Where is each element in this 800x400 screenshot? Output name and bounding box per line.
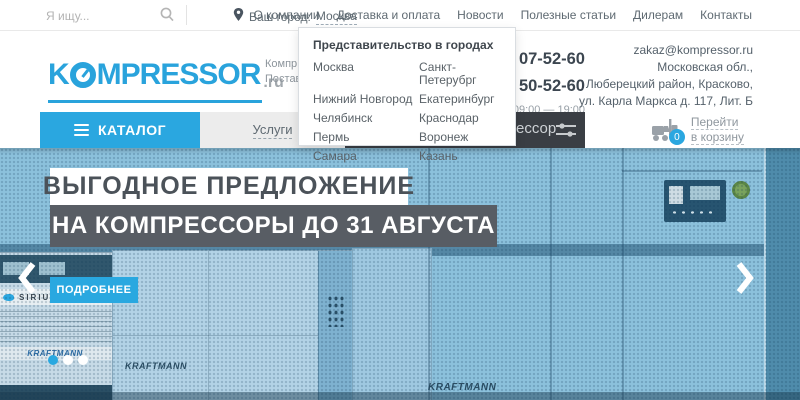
details-button[interactable]: ПОДРОБНЕЕ	[50, 277, 138, 303]
panel-seam	[550, 148, 552, 400]
city-dropdown-title: Представительство в городах	[313, 38, 501, 52]
city-option[interactable]: Казань	[419, 150, 501, 163]
sirius-logo-icon	[3, 294, 14, 301]
cart-label-line2: в корзину	[691, 131, 744, 145]
phone-number-2: 50-52-60	[513, 73, 585, 100]
cart-count-badge: 0	[669, 129, 685, 145]
topbar-divider	[186, 5, 187, 25]
city-dropdown-grid: Москва Санкт-Петерубрг Нижний Новгород Е…	[313, 61, 501, 163]
logo-text-mpressor: MPRESSOR	[97, 58, 261, 92]
phone-number-1: 07-52-60	[513, 46, 585, 73]
machine-right-control-panel	[664, 180, 726, 222]
city-option[interactable]: Пермь	[313, 131, 419, 144]
floor-shadow	[0, 392, 800, 400]
filter-sliders-icon[interactable]	[555, 121, 577, 144]
slider-next-arrow[interactable]	[732, 260, 756, 301]
catalog-button[interactable]: КАТАЛОГ	[40, 112, 200, 148]
promo-banner-line2: НА КОМПРЕССОРЫ ДО 31 АВГУСТА	[50, 205, 497, 247]
vent-holes	[327, 295, 345, 327]
nav-delivery[interactable]: Доставка и оплата	[337, 8, 441, 22]
machine-left-vents	[0, 311, 113, 343]
panel-seam	[208, 251, 209, 400]
emergency-knob	[732, 181, 750, 199]
logo-text-k: K	[48, 58, 69, 92]
hamburger-icon	[74, 124, 89, 136]
contacts-block: zakaz@kompressor.ru Московская обл., Люб…	[579, 42, 753, 110]
panel-seam	[622, 170, 762, 172]
cart-button[interactable]: 0 Перейти в корзину	[585, 112, 760, 148]
panel-seam	[428, 148, 430, 400]
city-option[interactable]: Екатеринбург	[419, 93, 501, 106]
page: Ваш город: Москва О компании Доставка и …	[0, 0, 800, 400]
services-label[interactable]: Услуги	[253, 122, 293, 139]
control-panel-logo	[669, 186, 683, 204]
machine-right-edge	[764, 148, 800, 400]
compressor-machine-center: KRAFTMANN	[112, 250, 354, 400]
control-panel-buttons	[670, 209, 718, 216]
tagline-line1: Компр	[265, 57, 301, 72]
city-dropdown: Представительство в городах Москва Санкт…	[298, 27, 516, 146]
nav-articles[interactable]: Полезные статьи	[521, 8, 616, 22]
cart-label-line1: Перейти	[691, 116, 739, 130]
nav-dealers[interactable]: Дилерам	[633, 8, 683, 22]
email-link[interactable]: zakaz@kompressor.ru	[579, 42, 753, 59]
nav-contacts[interactable]: Контакты	[700, 8, 752, 22]
tagline-line2: Постав	[265, 72, 301, 87]
slider-dot-1[interactable]	[48, 355, 58, 365]
nav-news[interactable]: Новости	[457, 8, 503, 22]
slider-dot-2[interactable]	[63, 355, 73, 365]
gauge-icon	[70, 62, 96, 88]
control-panel-screen	[690, 186, 720, 200]
hero-slider: SIRIUS KRAFTMANN KRAFTMANN KRAFTMANN	[0, 148, 800, 400]
slider-prev-arrow[interactable]	[16, 260, 40, 301]
panel-seam	[622, 148, 624, 400]
city-option[interactable]: Москва	[313, 61, 419, 87]
logo[interactable]: K MPRESSOR .ru	[48, 58, 284, 92]
cart-label: Перейти в корзину	[691, 115, 744, 145]
kraftmann-logo-center-left: KRAFTMANN	[125, 361, 187, 371]
city-option[interactable]: Краснодар	[419, 112, 501, 125]
catalog-search-text: ессор	[516, 120, 556, 137]
location-pin-icon	[233, 8, 244, 25]
forklift-cart-icon: 0	[651, 117, 679, 143]
search-input[interactable]	[44, 2, 160, 30]
compressor-panel	[352, 248, 432, 400]
nav-about[interactable]: О компании	[253, 8, 319, 22]
city-option[interactable]: Челябинск	[313, 112, 419, 125]
city-option[interactable]: Воронеж	[419, 131, 501, 144]
logo-underline	[48, 100, 262, 103]
search-icon[interactable]	[160, 7, 174, 27]
top-nav: О компании Доставка и оплата Новости Пол…	[253, 8, 752, 22]
address-line2: Люберецкий район, Красково,	[579, 76, 753, 93]
city-option[interactable]: Самара	[313, 150, 419, 163]
address-line3: ул. Карла Маркса д. 117, Лит. Б	[579, 93, 753, 110]
promo-banner-line1: ВЫГОДНОЕ ПРЕДЛОЖЕНИЕ	[50, 168, 408, 205]
phones-block: 07-52-60 50-52-60 09:00 — 19:00	[513, 46, 585, 116]
city-option[interactable]: Санкт-Петерубрг	[419, 61, 501, 87]
slider-dots	[48, 355, 88, 365]
address-line1: Московская обл.,	[579, 59, 753, 76]
city-option[interactable]: Нижний Новгород	[313, 93, 419, 106]
slider-dot-3[interactable]	[78, 355, 88, 365]
panel-seam	[113, 335, 318, 336]
catalog-label: КАТАЛОГ	[98, 122, 166, 138]
header-tagline: Компр Постав	[265, 57, 301, 87]
